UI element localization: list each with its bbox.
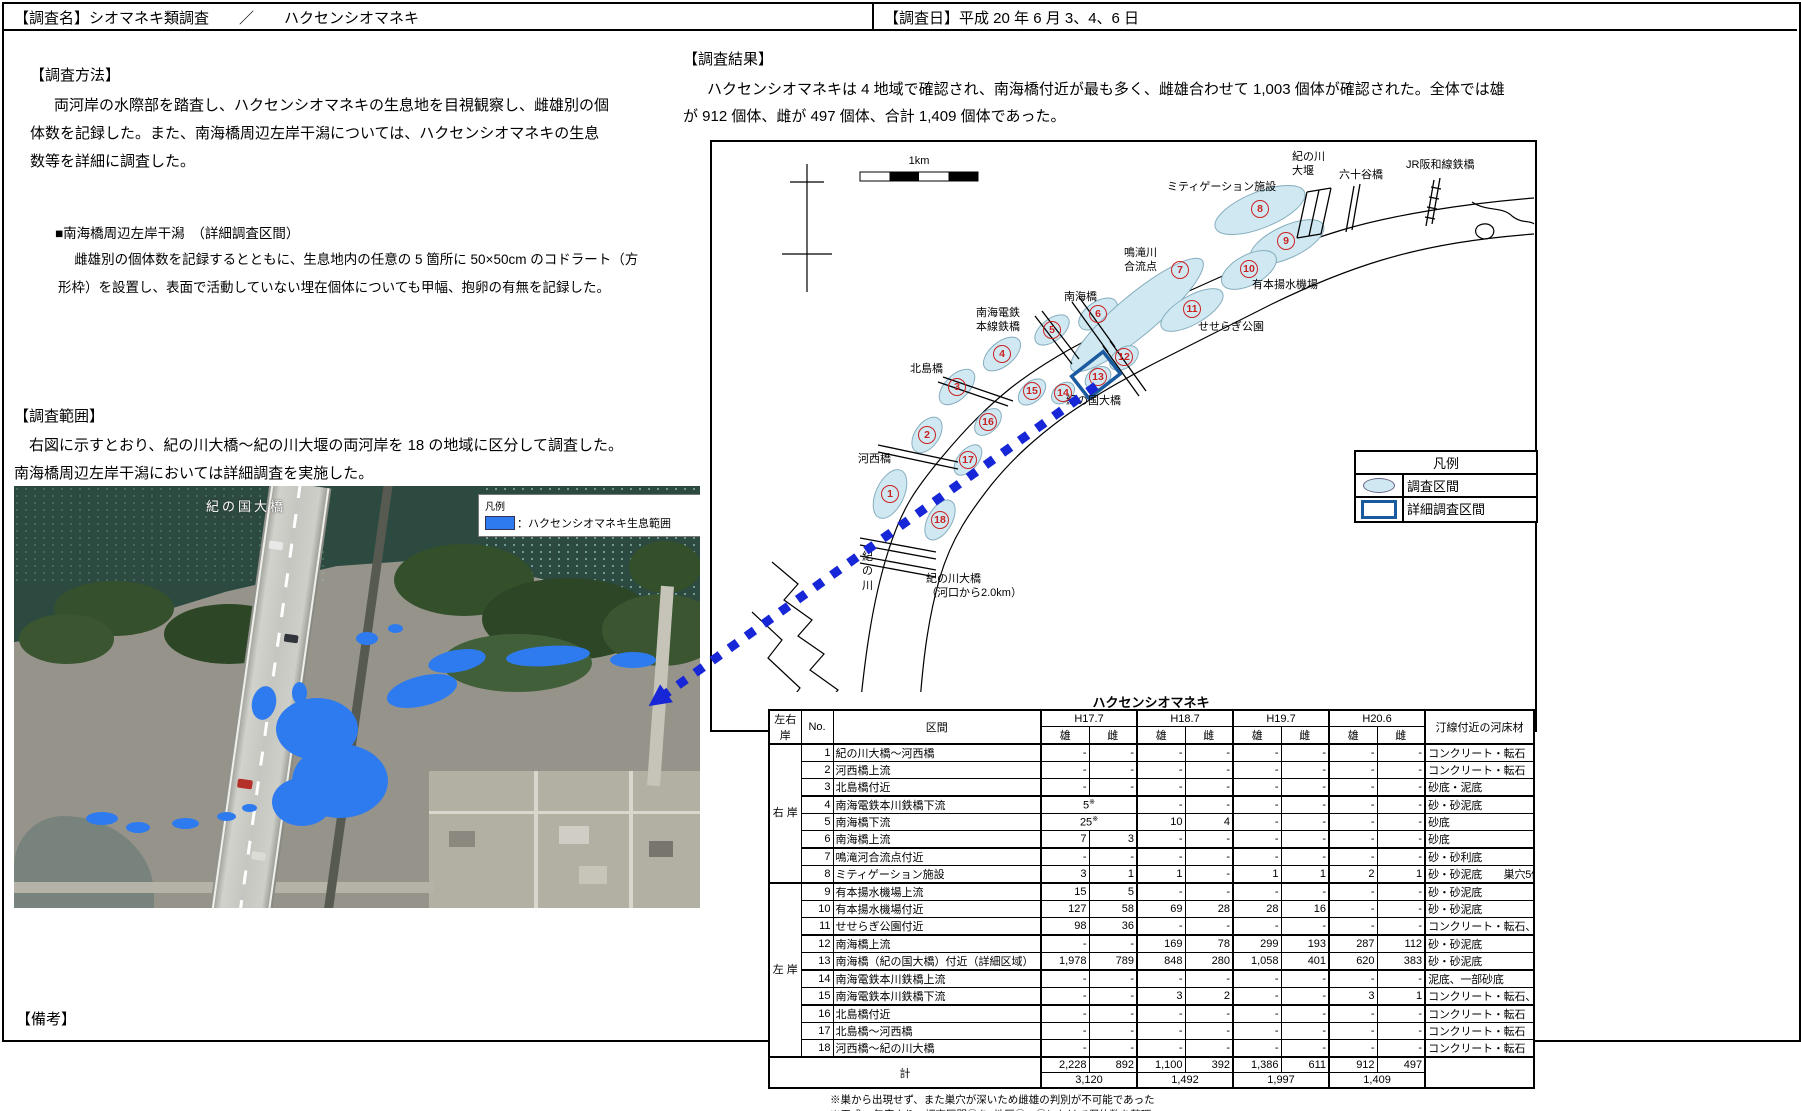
cell: 1 — [1377, 866, 1425, 884]
map-label: ミティゲーション施設 — [1167, 180, 1276, 194]
photo-bridge-label: 紀の国大橋 — [206, 496, 286, 515]
range-body: 右図に示すとおり、紀の川大橋〜紀の川大堰の両河岸を 18 の地域に区分して調査し… — [14, 432, 704, 488]
cell: 15 — [1041, 883, 1089, 901]
habitat-patch — [610, 652, 656, 668]
zone-number: 10 — [1240, 260, 1258, 278]
cell: 3 — [1089, 831, 1137, 849]
cell: コンクリート・転石 — [1425, 762, 1534, 779]
cell: - — [1041, 762, 1089, 779]
cell: 砂・砂泥底 — [1425, 953, 1534, 971]
cell: 3,120 — [1041, 1073, 1137, 1089]
cell: - — [1185, 883, 1233, 901]
cell: 1 — [1137, 866, 1185, 884]
zone-number: 7 — [1171, 261, 1189, 279]
cell: 9 — [801, 883, 833, 901]
cell: - — [1041, 935, 1089, 953]
cell: - — [1281, 762, 1329, 779]
results-table: 左右 岸No.区間H17.7H18.7H19.7H20.6汀線付近の河床材雄雌雄… — [768, 709, 1535, 1089]
cell: - — [1377, 848, 1425, 866]
col-header: 区間 — [833, 710, 1041, 744]
cell: - — [1377, 1040, 1425, 1058]
cell: - — [1329, 762, 1377, 779]
map-legend-title: 凡例 — [1356, 452, 1536, 473]
cell: - — [1377, 779, 1425, 797]
col-header: 雄 — [1233, 727, 1281, 745]
map-label: 1km — [909, 154, 930, 168]
cell: - — [1281, 1040, 1329, 1058]
section-name: せせらぎ公園付近 — [833, 918, 1041, 936]
detail-section-body: 雌雄別の個体数を記録するとともに、生息地内の任意の 5 箇所に 50×50cm … — [58, 246, 698, 303]
habitat-patch — [356, 632, 378, 645]
cell: - — [1185, 762, 1233, 779]
habitat-patch — [383, 668, 460, 715]
cell: 36 — [1089, 918, 1137, 936]
cell: 620 — [1329, 953, 1377, 971]
cell: 299 — [1233, 935, 1281, 953]
road — [429, 811, 700, 814]
cell: 砂底 — [1425, 831, 1534, 849]
building — [649, 841, 673, 857]
road — [534, 771, 538, 908]
map-label: 紀 の 川 — [862, 550, 873, 593]
habitat-patch — [126, 822, 150, 833]
zone-number: 17 — [959, 451, 977, 469]
cell: 112 — [1377, 935, 1425, 953]
cell: - — [1137, 848, 1185, 866]
cell: 611 — [1281, 1057, 1329, 1073]
cell: 3 — [1329, 988, 1377, 1006]
zone-number: 8 — [1251, 200, 1269, 218]
cell: 1,492 — [1137, 1073, 1233, 1089]
cell: - — [1377, 762, 1425, 779]
cell: - — [1185, 779, 1233, 797]
cell: 3 — [1041, 866, 1089, 884]
detail-section-title: ■南海橋周辺左岸干潟 （詳細調査区間） — [55, 222, 299, 242]
zone-number: 18 — [931, 511, 949, 529]
cell: 11 — [801, 918, 833, 936]
cell: - — [1185, 1040, 1233, 1058]
cell: 287 — [1329, 935, 1377, 953]
col-header: 雌 — [1089, 727, 1137, 745]
cell: - — [1377, 744, 1425, 762]
cell: - — [1377, 814, 1425, 831]
cell: - — [1329, 779, 1377, 797]
map-label: 鳴滝川 合流点 — [1124, 246, 1157, 275]
cell: - — [1329, 814, 1377, 831]
cell: - — [1329, 1040, 1377, 1058]
cell: - — [1041, 744, 1089, 762]
zone-number: 13 — [1089, 368, 1107, 386]
cell: - — [1041, 1005, 1089, 1023]
cell: - — [1089, 970, 1137, 988]
cell: 1,978 — [1041, 953, 1089, 971]
cell: 4 — [1185, 814, 1233, 831]
cell: - — [1233, 1005, 1281, 1023]
cell: 砂底・泥底 — [1425, 779, 1534, 797]
cell: - — [1185, 831, 1233, 849]
cell: 1,409 — [1329, 1073, 1425, 1089]
cell: - — [1137, 796, 1185, 814]
cell: 28 — [1185, 901, 1233, 918]
cell: - — [1137, 970, 1185, 988]
cell: 1 — [1377, 988, 1425, 1006]
habitat-patch — [388, 624, 403, 633]
cell: - — [1281, 779, 1329, 797]
cell: - — [1137, 883, 1185, 901]
cell: 12 — [801, 935, 833, 953]
cell: 砂・砂泥底 — [1425, 883, 1534, 901]
cell: - — [1089, 848, 1137, 866]
cell: - — [1089, 744, 1137, 762]
cell: 1 — [1281, 866, 1329, 884]
cell: 10 — [801, 901, 833, 918]
method-body: 両河岸の水際部を踏査し、ハクセンシオマネキの生息地を目視観察し、雌雄別の個 体数… — [30, 92, 690, 175]
results-title: 【調査結果】 — [683, 48, 773, 69]
map-label: 河西橋 — [858, 452, 891, 466]
cell: 6 — [801, 831, 833, 849]
col-header: H17.7 — [1041, 710, 1137, 727]
cell: 1 — [801, 744, 833, 762]
cell: 78 — [1185, 935, 1233, 953]
cell: - — [1281, 744, 1329, 762]
map-label: 有本揚水機場 — [1252, 278, 1318, 292]
zone-number: 3 — [948, 378, 966, 396]
zone-number: 16 — [979, 413, 997, 431]
section-name: 南海電鉄本川鉄橋下流 — [833, 796, 1041, 814]
cell: - — [1281, 970, 1329, 988]
cell: - — [1185, 970, 1233, 988]
habitat-patch — [272, 778, 332, 826]
habitat-swatch — [485, 516, 515, 530]
cell: - — [1233, 814, 1281, 831]
cell: - — [1137, 779, 1185, 797]
cell: 10 — [1137, 814, 1185, 831]
cell: - — [1137, 762, 1185, 779]
photo-legend: 凡例 ：ハクセンシオマネキ生息範囲 — [478, 494, 700, 537]
col-header: H18.7 — [1137, 710, 1233, 727]
total-label: 計 — [769, 1057, 1041, 1088]
col-header: 汀線付近の河床材 — [1425, 710, 1534, 744]
photo-legend-label: ：ハクセンシオマネキ生息範囲 — [517, 515, 671, 531]
zone-number: 1 — [881, 485, 899, 503]
habitat-patch — [86, 812, 118, 825]
cell: 1 — [1233, 866, 1281, 884]
cell: - — [1233, 831, 1281, 849]
cell: - — [1089, 1005, 1137, 1023]
cell: - — [1281, 883, 1329, 901]
cell: 泥底、一部砂底 — [1425, 970, 1534, 988]
cell: - — [1329, 883, 1377, 901]
cell: 3 — [801, 779, 833, 797]
col-header: 雄 — [1137, 727, 1185, 745]
car — [237, 778, 253, 789]
cell: - — [1377, 970, 1425, 988]
cell: 7 — [801, 848, 833, 866]
section-name: 南海橋上流 — [833, 831, 1041, 849]
cell: - — [1377, 918, 1425, 936]
zone-number: 12 — [1115, 348, 1133, 366]
cell: - — [1377, 1023, 1425, 1040]
section-name: 南海橋上流 — [833, 935, 1041, 953]
cell: コンクリート・転石 — [1425, 1023, 1534, 1040]
cell: 383 — [1377, 953, 1425, 971]
cell: - — [1233, 848, 1281, 866]
cell: - — [1377, 1005, 1425, 1023]
table-note: ※巣から出現せず、また巣穴が深いため雌雄の判別が不可能であった — [830, 1093, 1534, 1108]
cell: - — [1041, 1040, 1089, 1058]
road — [629, 771, 633, 908]
cell: - — [1041, 1023, 1089, 1040]
map-label: 南海橋 — [1064, 290, 1097, 304]
section-name: 南海橋下流 — [833, 814, 1041, 831]
cell: - — [1089, 762, 1137, 779]
cell: - — [1329, 918, 1377, 936]
cell: 789 — [1089, 953, 1137, 971]
zone-number: 5 — [1043, 321, 1061, 339]
cell: 1,058 — [1233, 953, 1281, 971]
cell: 25※ — [1041, 814, 1137, 831]
col-header: 左右 岸 — [769, 710, 801, 744]
cell: - — [1281, 1023, 1329, 1040]
map-legend: 凡例 調査区間 詳細調査区間 — [1354, 450, 1538, 523]
map-label: JR阪和線鉄橋 — [1406, 158, 1474, 172]
cell: - — [1137, 1023, 1185, 1040]
building — [559, 826, 589, 844]
cell — [1425, 1057, 1534, 1088]
scale-bar — [860, 172, 978, 181]
remarks-title: 【備考】 — [16, 1008, 76, 1029]
photo-legend-title: 凡例 — [485, 498, 699, 513]
map-legend-detail: 詳細調査区間 — [1404, 498, 1488, 521]
cell: - — [1089, 1040, 1137, 1058]
cell: - — [1377, 796, 1425, 814]
zone-number: 11 — [1183, 300, 1201, 318]
cell: - — [1089, 935, 1137, 953]
map-label: 六十谷橋 — [1339, 168, 1383, 182]
cell: - — [1089, 779, 1137, 797]
cell: - — [1185, 918, 1233, 936]
cell: コンクリート・転石 — [1425, 744, 1534, 762]
header-divider — [872, 4, 874, 29]
cell: - — [1233, 744, 1281, 762]
map-label: 紀の川大橋 （河口から2.0km） — [926, 572, 1022, 601]
cell: 17 — [801, 1023, 833, 1040]
cell: 912 — [1329, 1057, 1377, 1073]
cell: - — [1329, 901, 1377, 918]
cell: 1,997 — [1233, 1073, 1329, 1089]
cell: - — [1185, 1023, 1233, 1040]
cell: コンクリート・転石 — [1425, 1040, 1534, 1058]
cell: 砂・砂泥底 — [1425, 796, 1534, 814]
survey-map: 1kmミティゲーション施設紀の川 大堰六十谷橋JR阪和線鉄橋鳴滝川 合流点有本揚… — [710, 140, 1537, 732]
building — [449, 831, 475, 847]
cell: - — [1089, 1023, 1137, 1040]
cell: 8 — [801, 866, 833, 884]
col-header: H20.6 — [1329, 710, 1425, 727]
map-label: 北島橋 — [910, 362, 943, 376]
cell: 58 — [1089, 901, 1137, 918]
cell: 1,100 — [1137, 1057, 1185, 1073]
cell: コンクリート・転石、一部砂底 — [1425, 988, 1534, 1006]
cell: - — [1329, 848, 1377, 866]
results-table-block: ハクセンシオマネキ 左右 岸No.区間H17.7H18.7H19.7H20.6汀… — [768, 692, 1534, 1111]
habitat-patch — [172, 818, 199, 829]
habitat-patch — [242, 804, 257, 812]
zone-swatch — [1356, 475, 1404, 496]
cell: - — [1137, 918, 1185, 936]
habitat-patch — [217, 812, 236, 821]
cell: 1 — [1089, 866, 1137, 884]
bank-right: 右 岸 — [769, 744, 801, 883]
cell: 280 — [1185, 953, 1233, 971]
cell: コンクリート・転石 — [1425, 1005, 1534, 1023]
cell: 1,386 — [1233, 1057, 1281, 1073]
cell: 16 — [1281, 901, 1329, 918]
section-name: 河西橋〜紀の川大橋 — [833, 1040, 1041, 1058]
cell: 2 — [1329, 866, 1377, 884]
cell: 28 — [1233, 901, 1281, 918]
cell: - — [1233, 796, 1281, 814]
section-name: 南海橋（紀の国大橋）付近（詳細区域） — [833, 953, 1041, 971]
cell: - — [1377, 901, 1425, 918]
cell: - — [1185, 796, 1233, 814]
cell: 892 — [1089, 1057, 1137, 1073]
map-label: 南海電鉄 本線鉄橋 — [976, 306, 1020, 335]
cell: - — [1281, 814, 1329, 831]
urban-area — [429, 771, 700, 908]
section-name: 南海電鉄本川鉄橋上流 — [833, 970, 1041, 988]
col-header: 雄 — [1041, 727, 1089, 745]
cell: - — [1281, 831, 1329, 849]
cell: - — [1281, 796, 1329, 814]
cell: 2 — [801, 762, 833, 779]
section-name: 有本揚水機場付近 — [833, 901, 1041, 918]
survey-name: 【調査名】シオマネキ類調査 ／ ハクセンシオマネキ — [14, 7, 419, 28]
cell: 15 — [801, 988, 833, 1006]
cell: - — [1281, 848, 1329, 866]
cell: 497 — [1377, 1057, 1425, 1073]
cell: - — [1329, 831, 1377, 849]
cell: - — [1137, 1040, 1185, 1058]
cell: 169 — [1137, 935, 1185, 953]
map-label: 紀の国大橋 — [1066, 394, 1121, 408]
cell: 18 — [801, 1040, 833, 1058]
section-name: 北島橋〜河西橋 — [833, 1023, 1041, 1040]
cell: - — [1041, 848, 1089, 866]
cell: - — [1329, 796, 1377, 814]
building — [579, 866, 607, 884]
car — [268, 541, 283, 551]
zone-number: 15 — [1023, 382, 1041, 400]
cell: - — [1329, 1005, 1377, 1023]
cell: 3 — [1137, 988, 1185, 1006]
method-title: 【調査方法】 — [30, 64, 120, 85]
cell: 砂・砂泥底 — [1425, 935, 1534, 953]
cell: - — [1137, 1005, 1185, 1023]
cell: - — [1185, 848, 1233, 866]
cell: - — [1329, 1023, 1377, 1040]
cell: - — [1089, 988, 1137, 1006]
cell: 392 — [1185, 1057, 1233, 1073]
cell: - — [1233, 779, 1281, 797]
cell: 848 — [1137, 953, 1185, 971]
survey-date: 【調査日】平成 20 年 6 月 3、4、6 日 — [884, 7, 1139, 28]
cell: - — [1233, 918, 1281, 936]
cell: - — [1233, 988, 1281, 1006]
cell: - — [1185, 1005, 1233, 1023]
cell: - — [1233, 762, 1281, 779]
cell: - — [1041, 970, 1089, 988]
zone-number: 9 — [1277, 232, 1295, 250]
header-rule — [2, 29, 1797, 31]
cell: - — [1185, 744, 1233, 762]
bank-left: 左 岸 — [769, 883, 801, 1057]
zone-number: 4 — [993, 345, 1011, 363]
section-name: 有本揚水機場上流 — [833, 883, 1041, 901]
cell: 5 — [801, 814, 833, 831]
cell: 砂・砂泥底 巣穴5個確認 — [1425, 866, 1534, 884]
range-title: 【調査範囲】 — [14, 405, 104, 426]
table-notes: ※巣から出現せず、また巣穴が深いため雌雄の判別が不可能であった※平成18年度より… — [768, 1093, 1534, 1111]
cell: 砂・砂泥底 — [1425, 901, 1534, 918]
col-header: 雌 — [1185, 727, 1233, 745]
cell: - — [1041, 988, 1089, 1006]
cell: - — [1281, 918, 1329, 936]
cell: 13 — [801, 953, 833, 971]
cell: - — [1233, 883, 1281, 901]
cell: 4 — [801, 796, 833, 814]
col-header: 雄 — [1329, 727, 1377, 745]
cell: - — [1329, 970, 1377, 988]
map-label: 紀の川 大堰 — [1292, 150, 1325, 179]
map-legend-survey: 調査区間 — [1404, 475, 1462, 496]
cell: 98 — [1041, 918, 1089, 936]
cell: 16 — [801, 1005, 833, 1023]
map-label: せせらぎ公園 — [1198, 320, 1264, 334]
cell: 砂・砂利底 — [1425, 848, 1534, 866]
cell: 401 — [1281, 953, 1329, 971]
cell: - — [1377, 831, 1425, 849]
vegetation — [19, 614, 114, 664]
report-page: 【調査名】シオマネキ類調査 ／ ハクセンシオマネキ 【調査日】平成 20 年 6… — [0, 0, 1801, 1111]
zone-number: 6 — [1089, 305, 1107, 323]
section-name: 紀の川大橋〜河西橋 — [833, 744, 1041, 762]
cell: - — [1137, 744, 1185, 762]
cell: - — [1137, 831, 1185, 849]
col-header: 雌 — [1281, 727, 1329, 745]
map-drawing — [712, 142, 1535, 730]
cell: - — [1185, 866, 1233, 884]
col-header: H19.7 — [1233, 710, 1329, 727]
cell: 69 — [1137, 901, 1185, 918]
cell: 5※ — [1041, 796, 1137, 814]
cell: 193 — [1281, 935, 1329, 953]
cell: - — [1377, 883, 1425, 901]
section-name: 鳴滝河合流点付近 — [833, 848, 1041, 866]
cell: - — [1233, 1040, 1281, 1058]
cell: 5 — [1089, 883, 1137, 901]
habitat-patch — [292, 682, 307, 704]
cell: 14 — [801, 970, 833, 988]
cell: 7 — [1041, 831, 1089, 849]
section-name: ミティゲーション施設 — [833, 866, 1041, 884]
cell: - — [1281, 1005, 1329, 1023]
col-header: 雌 — [1377, 727, 1425, 745]
cell: 2,228 — [1041, 1057, 1089, 1073]
results-body: ハクセンシオマネキは 4 地域で確認され、南海橋付近が最も多く、雌雄合わせて 1… — [683, 76, 1791, 130]
car — [284, 634, 299, 644]
zone-number: 2 — [918, 426, 936, 444]
